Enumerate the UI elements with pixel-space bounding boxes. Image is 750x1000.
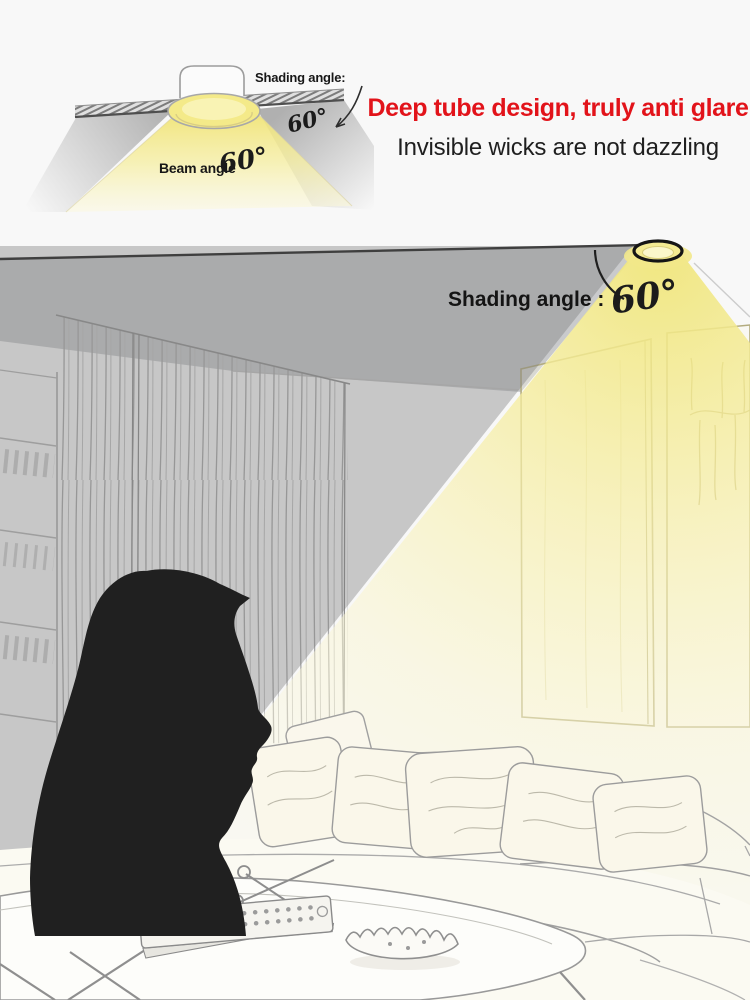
room-shading-angle-value: 60° [609,274,681,319]
room-shading-angle-annotation: Shading angle : 60° [448,282,679,318]
diagram-beam-angle-value: 60° [217,144,270,178]
lamp-cross-section-diagram [22,66,374,212]
diagram-shading-angle-label: Shading angle: [255,70,345,85]
product-infographic: Shading angle: 60° Beam angle 60° Deep t… [0,0,750,1000]
subheadline: Invisible wicks are not dazzling [360,134,750,162]
header-text-block: Deep tube design, truly anti glare Invis… [360,94,750,162]
headline: Deep tube design, truly anti glare [360,94,750,123]
room-shading-angle-label: Shading angle : [448,288,604,312]
